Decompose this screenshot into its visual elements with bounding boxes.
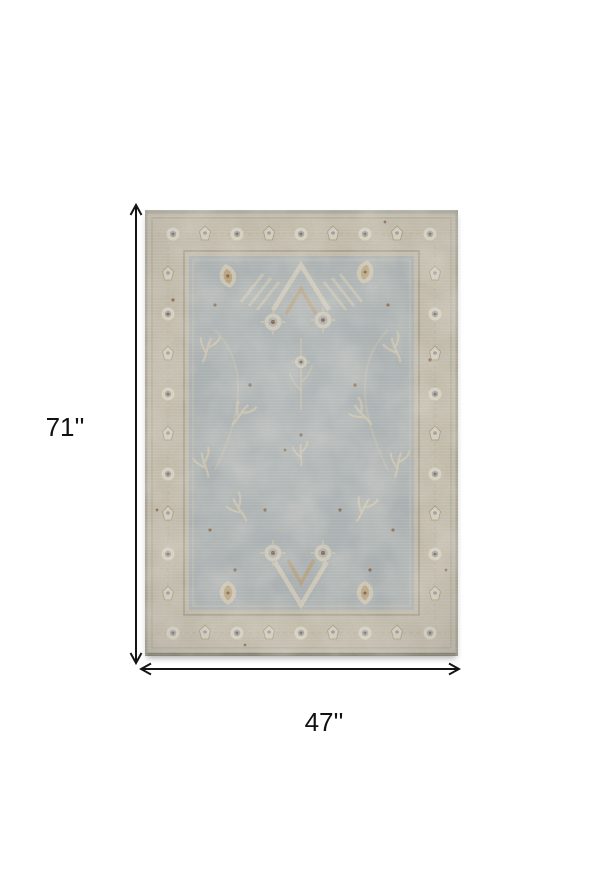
width-dimension-arrow xyxy=(139,661,461,677)
rug-artwork xyxy=(145,210,458,656)
height-dimension-label: 71'' xyxy=(20,409,110,445)
rug-photo xyxy=(145,210,458,656)
product-dimension-image: 71'' 47'' xyxy=(0,0,600,872)
height-dimension-arrow xyxy=(128,202,144,668)
width-dimension-label: 47'' xyxy=(279,704,369,740)
